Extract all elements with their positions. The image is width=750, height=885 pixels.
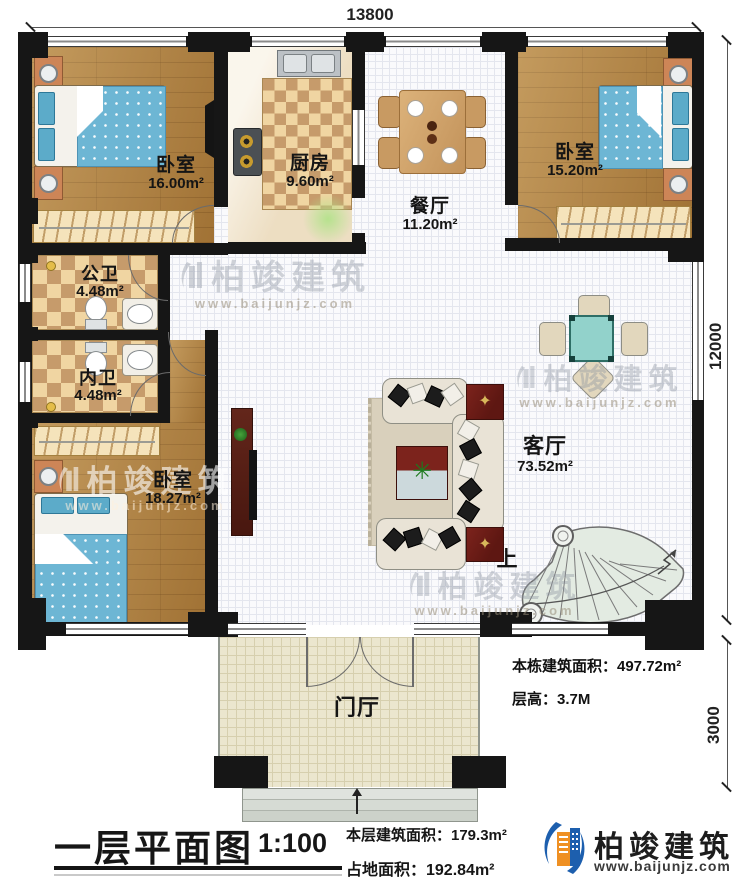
plate-icon [441, 147, 458, 164]
dining-chair [378, 137, 401, 169]
room-name: 卧室 [525, 142, 625, 163]
plate-icon [407, 147, 424, 164]
room-name: 餐厅 [380, 196, 480, 217]
column [482, 32, 526, 52]
room-area: 73.52m² [495, 459, 595, 476]
room-label-dining: 餐厅 11.20m² [380, 196, 480, 234]
wall [352, 47, 365, 110]
side-table: ✦ [466, 384, 504, 420]
tea-chair [539, 322, 566, 356]
column [18, 598, 46, 650]
entry-door-leaf [412, 637, 414, 687]
lamp-icon [39, 64, 58, 83]
brand-url: www.baijunjz.com [594, 858, 731, 874]
room-name: 厨房 [260, 153, 360, 174]
entry-door-leaf [306, 637, 308, 687]
column [668, 32, 704, 58]
room-name: 卧室 [126, 155, 226, 176]
window [19, 264, 31, 302]
sink-basin-icon [311, 54, 335, 73]
burner-icon [240, 135, 253, 148]
kitchen-door-glow [302, 194, 354, 244]
room-area: 4.48m² [48, 388, 148, 405]
column [18, 32, 48, 58]
room-area: 11.20m² [380, 217, 480, 234]
dimension-line-porch [727, 640, 728, 788]
column [645, 600, 704, 650]
window [386, 36, 480, 47]
room-area: 4.48m² [50, 284, 150, 301]
window [692, 262, 704, 400]
bedroom3-wardrobe [34, 426, 160, 456]
floor-area-note: 本层建筑面积：179.3m² [346, 824, 507, 845]
room-label-ensuite-bath: 内卫 4.48m² [48, 368, 148, 405]
room-label-bedroom1: 卧室 16.00m² [126, 155, 226, 193]
room-label-bedroom3: 卧室 18.27m² [123, 470, 223, 508]
window [48, 36, 186, 47]
lamp-icon [39, 467, 58, 486]
window [66, 623, 188, 635]
wall [505, 47, 518, 205]
coffee-table: ✳ [396, 446, 448, 500]
stove [233, 128, 262, 176]
floor-plan-sheet: ✳ ✦ ✦ [0, 0, 750, 885]
porch-edge [478, 637, 480, 757]
dining-table [399, 90, 466, 174]
room-label-kitchen: 厨房 9.60m² [260, 153, 360, 191]
tea-chair [621, 322, 648, 356]
dish-icon [427, 121, 437, 131]
dimension-height: 12000 [706, 300, 726, 370]
basin-icon [127, 304, 153, 324]
wall [352, 233, 365, 254]
sheet-scale: 1:100 [258, 828, 327, 859]
dimension-line-right [727, 40, 728, 620]
wall [18, 243, 228, 255]
room-name: 内卫 [48, 368, 148, 388]
column [452, 756, 506, 788]
dimension-line-top [30, 27, 698, 28]
window [19, 362, 31, 402]
bedroom1-wardrobe [33, 210, 195, 243]
dimension-porch-depth: 3000 [704, 688, 724, 744]
total-area-note: 本栋建筑面积：497.72m² [512, 655, 681, 676]
plant-icon: ✳ [412, 460, 432, 484]
entry-arrow-head-icon [352, 788, 362, 796]
bedroom2-wardrobe [556, 206, 691, 239]
public-bath-toilet [84, 296, 108, 330]
living-tv [249, 450, 257, 520]
room-label-bedroom2: 卧室 15.20m² [525, 142, 625, 180]
room-area: 9.60m² [260, 174, 360, 191]
room-name: 公卫 [50, 264, 150, 284]
bedroom3-bed [34, 493, 128, 625]
bedroom3-nightstand [34, 460, 63, 493]
plate-icon [407, 100, 424, 117]
window [414, 623, 480, 635]
room-name: 客厅 [495, 435, 595, 459]
room-label-public-bath: 公卫 4.48m² [50, 264, 150, 301]
title-underline [54, 866, 342, 870]
window [512, 623, 608, 635]
bedroom1-tv [205, 100, 214, 158]
bedroom1-nightstand [34, 166, 63, 200]
room-label-foyer: 门厅 [307, 696, 407, 721]
wall [228, 242, 366, 254]
tea-table [569, 315, 614, 362]
floor-height-note: 层高：3.7M [512, 688, 590, 709]
lamp-icon [669, 65, 688, 84]
stairs-up-label: 上 [492, 548, 522, 572]
brand-logo-icon [540, 818, 588, 878]
room-area: 15.20m² [525, 163, 625, 180]
room-area: 16.00m² [126, 176, 226, 193]
land-area-note: 占地面积：192.84m² [346, 856, 495, 880]
dining-chair [463, 96, 486, 128]
sink-basin-icon [283, 54, 307, 73]
room-area: 18.27m² [123, 491, 223, 508]
column [18, 198, 38, 224]
dining-chair [463, 137, 486, 169]
room-label-living: 客厅 73.52m² [495, 435, 595, 475]
window [228, 623, 306, 635]
kitchen-sink [277, 50, 341, 77]
lamp-icon [669, 175, 688, 194]
wall [32, 330, 170, 340]
public-bath-sink [122, 298, 158, 330]
room-name: 门厅 [307, 696, 407, 721]
dimension-width: 13800 [330, 5, 410, 25]
window [252, 36, 344, 47]
burner-icon [240, 155, 253, 168]
title-underline-thin [54, 874, 342, 876]
plant-icon [234, 428, 247, 441]
room-name: 卧室 [123, 470, 223, 491]
dish-icon [427, 134, 437, 144]
basin-icon [127, 350, 153, 370]
dining-chair [378, 96, 401, 128]
plate-icon [441, 100, 458, 117]
porch-edge [218, 637, 220, 757]
lamp-icon [39, 174, 58, 193]
sheet-title: 一层平面图 [54, 818, 254, 872]
window [528, 36, 666, 47]
sofa-loveseat-bottom [376, 518, 466, 570]
column [214, 756, 268, 788]
bedroom2-nightstand [663, 168, 693, 201]
